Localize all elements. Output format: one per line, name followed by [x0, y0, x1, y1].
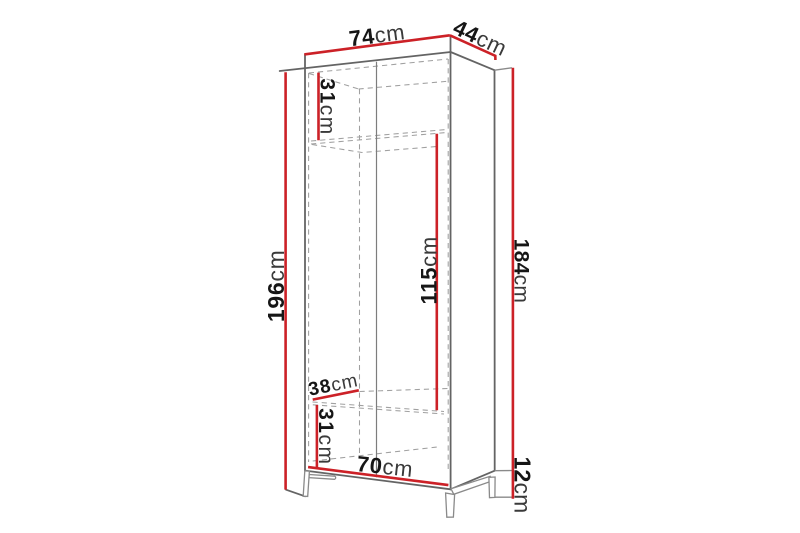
- svg-text:70cm: 70cm: [356, 451, 415, 482]
- svg-text:196cm: 196cm: [263, 250, 289, 323]
- svg-text:12cm: 12cm: [510, 456, 536, 513]
- svg-text:31cm: 31cm: [315, 78, 338, 135]
- svg-text:74cm: 74cm: [348, 19, 407, 51]
- svg-text:38cm: 38cm: [307, 370, 361, 400]
- svg-text:115cm: 115cm: [416, 236, 441, 304]
- svg-text:44cm: 44cm: [449, 15, 511, 61]
- svg-text:31cm: 31cm: [314, 408, 337, 465]
- svg-text:184cm: 184cm: [510, 239, 533, 304]
